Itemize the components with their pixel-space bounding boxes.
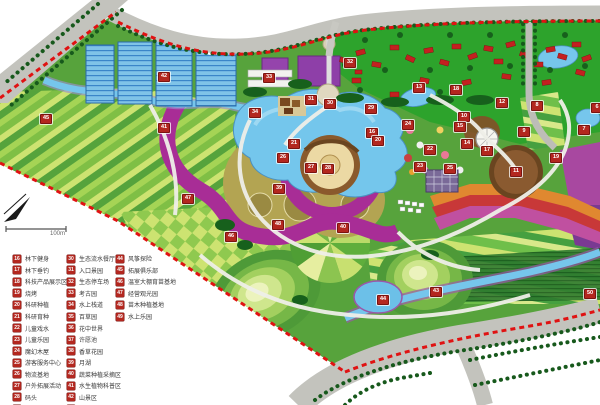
map-marker-46: 46: [225, 232, 237, 242]
map-marker-22: 22: [424, 145, 436, 155]
map-marker-15: 15: [454, 122, 466, 132]
map-marker-34: 34: [249, 108, 261, 118]
scale-label: 100m: [50, 231, 65, 237]
map-marker-21: 21: [288, 139, 300, 149]
map-marker-6: 6: [591, 103, 600, 113]
map-marker-23: 23: [414, 162, 426, 172]
map-marker-41: 41: [158, 123, 170, 133]
map-marker-44: 44: [377, 295, 389, 305]
map-marker-14: 14: [461, 139, 473, 149]
plan-artwork: [0, 0, 600, 405]
map-marker-24: 24: [402, 120, 414, 130]
map-marker-29: 29: [365, 104, 377, 114]
map-marker-43: 43: [430, 287, 442, 297]
map-marker-50: 50: [584, 289, 596, 299]
map-marker-7: 7: [578, 125, 590, 135]
map-marker-28: 28: [322, 164, 334, 174]
north-arrow: [4, 194, 30, 222]
map-marker-40: 40: [337, 223, 349, 233]
map-marker-45: 45: [40, 114, 52, 124]
map-marker-13: 13: [413, 83, 425, 93]
map-marker-12: 12: [496, 98, 508, 108]
map-marker-30: 30: [324, 99, 336, 109]
map-marker-10: 10: [458, 112, 470, 122]
map-marker-8: 8: [531, 101, 543, 111]
map-marker-26: 26: [277, 153, 289, 163]
master-plan-canvas: 100m 42454147333432313029131812861024971…: [0, 0, 600, 405]
map-marker-27: 27: [305, 163, 317, 173]
road-south-branch: [460, 338, 485, 405]
map-marker-39: 39: [273, 184, 285, 194]
map-marker-17: 17: [481, 146, 493, 156]
map-marker-19: 19: [550, 153, 562, 163]
map-marker-48: 48: [272, 220, 284, 230]
map-marker-47: 47: [182, 194, 194, 204]
map-marker-42: 42: [158, 72, 170, 82]
map-marker-20: 20: [372, 136, 384, 146]
map-marker-25: 25: [444, 164, 456, 174]
map-marker-31: 31: [305, 95, 317, 105]
map-marker-11: 11: [510, 167, 522, 177]
map-marker-33: 33: [263, 73, 275, 83]
map-marker-32: 32: [344, 58, 356, 68]
map-marker-9: 9: [518, 127, 530, 137]
map-marker-18: 18: [450, 85, 462, 95]
